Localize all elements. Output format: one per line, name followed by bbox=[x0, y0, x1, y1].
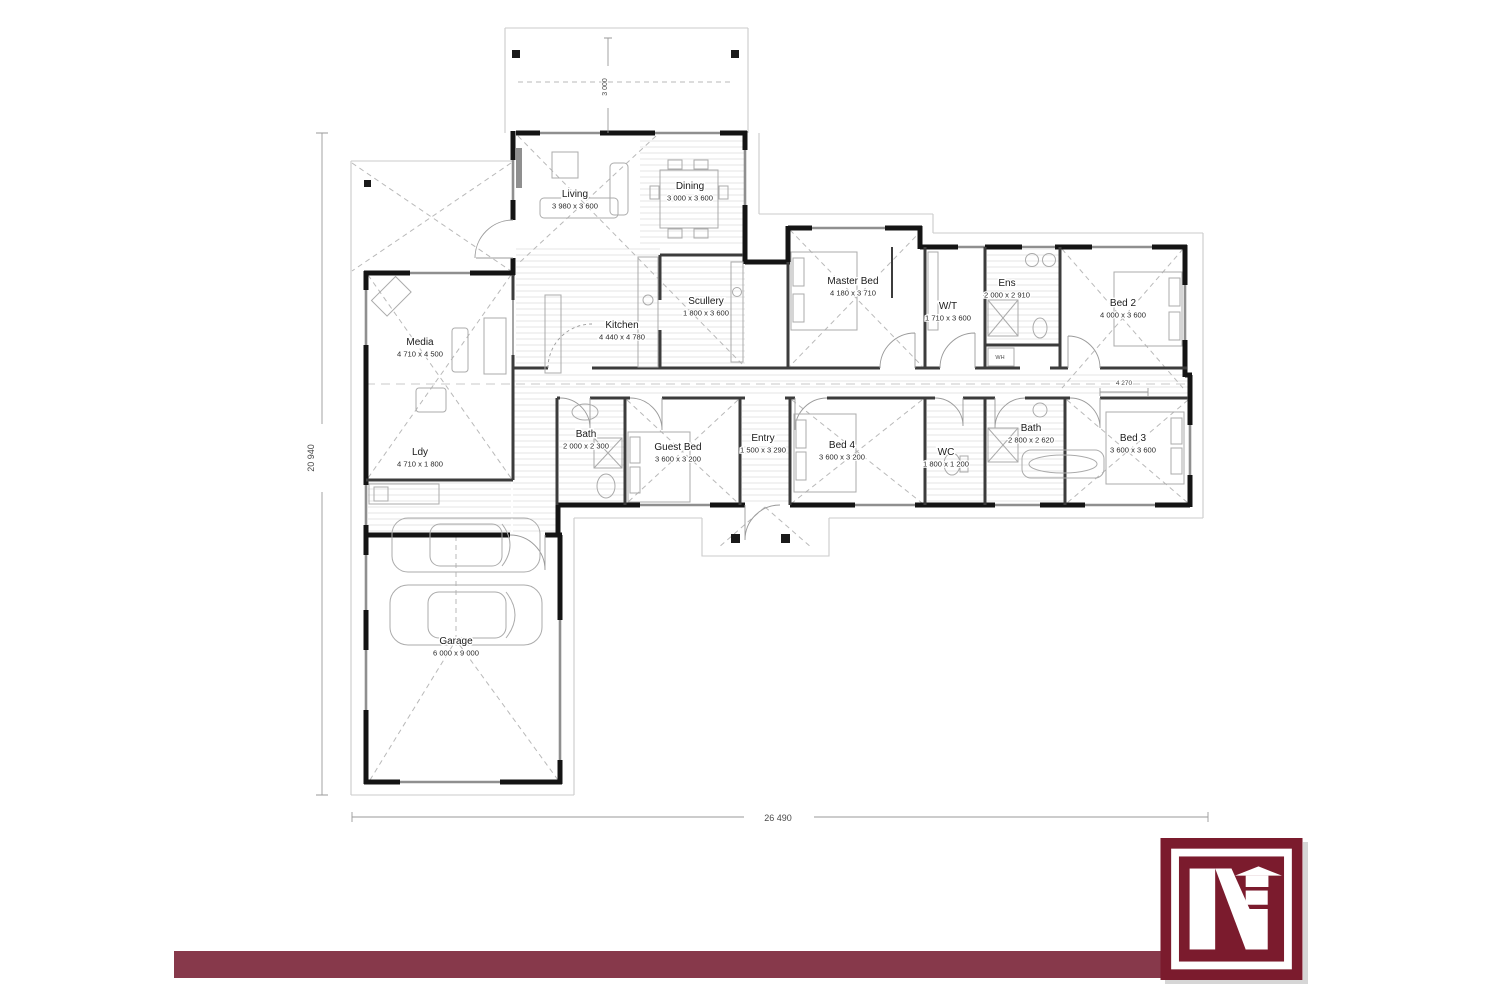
dim-bottom-label: 26 490 bbox=[764, 813, 792, 823]
room-dims-ensuite: 2 000 x 2 910 bbox=[984, 291, 1030, 300]
room-label-wc: WC bbox=[938, 447, 955, 458]
room-label-ensuite: Ens bbox=[998, 278, 1015, 289]
room-label-bed4: Bed 4 bbox=[829, 440, 856, 451]
room-dims-dining: 3 000 x 3 600 bbox=[667, 194, 713, 203]
room-label-living: Living bbox=[562, 189, 588, 200]
room-label-garage: Garage bbox=[439, 636, 473, 647]
room-dims-entry: 1 500 x 3 290 bbox=[740, 446, 786, 455]
room-dims-guest-bed: 3 600 x 3 200 bbox=[655, 455, 701, 464]
dim-step-label: 4 270 bbox=[1116, 380, 1133, 387]
room-label-master-bed: Master Bed bbox=[827, 276, 878, 287]
room-label-bed2: Bed 2 bbox=[1110, 298, 1137, 309]
n-house-monogram bbox=[1160, 838, 1303, 980]
room-dims-scullery: 1 800 x 3 600 bbox=[683, 309, 729, 318]
room-label-entry: Entry bbox=[751, 433, 774, 444]
room-label-dining: Dining bbox=[676, 181, 704, 192]
room-dims-bath1: 2 000 x 2 300 bbox=[563, 442, 609, 451]
room-dims-walk-through-robe: 1 710 x 3 600 bbox=[925, 314, 971, 323]
room-dims-bed4: 3 600 x 3 200 bbox=[819, 453, 865, 462]
room-dims-kitchen: 4 440 x 4 780 bbox=[599, 333, 645, 342]
room-label-scullery: Scullery bbox=[688, 296, 724, 307]
dim-left-label: 20 940 bbox=[306, 444, 316, 472]
room-dims-media: 4 710 x 4 500 bbox=[397, 350, 443, 359]
room-label-laundry: Ldy bbox=[412, 447, 428, 458]
water-heater-label: WH bbox=[995, 355, 1004, 361]
room-label-bed3: Bed 3 bbox=[1120, 433, 1147, 444]
dim-top-label: 3 000 bbox=[602, 78, 609, 96]
company-logo bbox=[1160, 838, 1303, 980]
room-dims-bath2: 2 800 x 2 620 bbox=[1008, 436, 1054, 445]
floor-hatching bbox=[368, 136, 1190, 535]
room-label-kitchen: Kitchen bbox=[605, 320, 638, 331]
footer-brand-bar bbox=[174, 951, 1164, 978]
room-dims-garage: 6 000 x 9 000 bbox=[433, 649, 479, 658]
room-label-bath2: Bath bbox=[1021, 423, 1042, 434]
floor-plan-page: Living3 980 x 3 600Dining3 000 x 3 600Sc… bbox=[0, 0, 1500, 1000]
room-label-media: Media bbox=[406, 337, 434, 348]
room-label-guest-bed: Guest Bed bbox=[654, 442, 701, 453]
room-dims-master-bed: 4 180 x 3 710 bbox=[830, 289, 876, 298]
room-dims-living: 3 980 x 3 600 bbox=[552, 202, 598, 211]
room-dims-wc: 1 800 x 1 200 bbox=[923, 460, 969, 469]
room-dims-bed2: 4 000 x 3 600 bbox=[1100, 311, 1146, 320]
room-dims-bed3: 3 600 x 3 600 bbox=[1110, 446, 1156, 455]
room-dims-laundry: 4 710 x 1 800 bbox=[397, 460, 443, 469]
room-label-walk-through-robe: W/T bbox=[939, 301, 957, 312]
room-label-bath1: Bath bbox=[576, 429, 597, 440]
